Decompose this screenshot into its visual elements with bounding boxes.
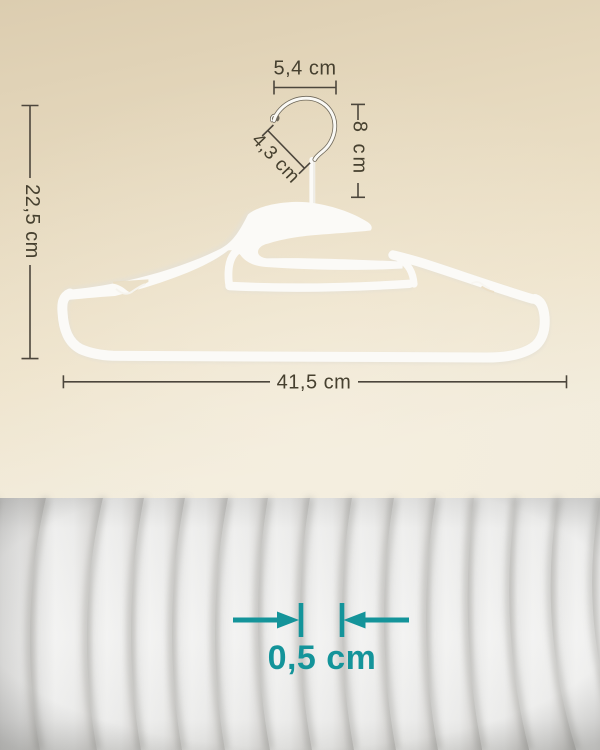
svg-text:5,4 cm: 5,4 cm [273, 58, 336, 80]
svg-text:41,5 cm: 41,5 cm [277, 372, 352, 394]
svg-text:22,5 cm: 22,5 cm [21, 184, 43, 259]
svg-text:8 cm: 8 cm [349, 121, 371, 176]
svg-text:0,5 cm: 0,5 cm [268, 639, 377, 677]
